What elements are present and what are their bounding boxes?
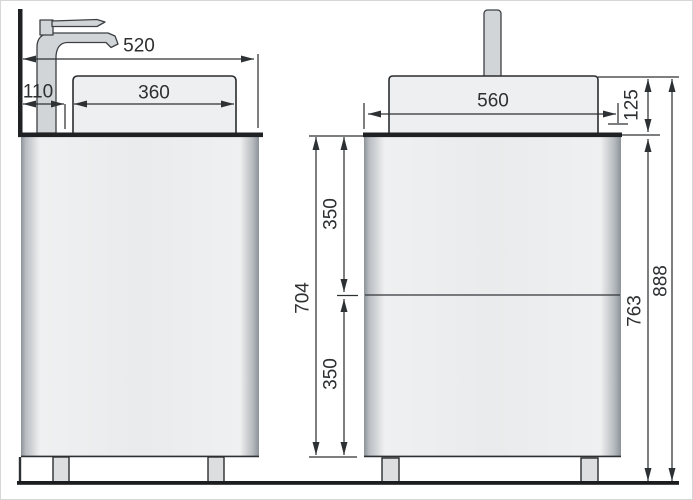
dim-560-label: 560 xyxy=(477,92,509,111)
dim-350-lower-label: 350 xyxy=(322,358,341,390)
dim-888-label: 888 xyxy=(652,265,671,297)
dim-704-label: 704 xyxy=(294,282,313,314)
cabinet-side xyxy=(21,137,259,457)
leg-side-left xyxy=(53,457,69,482)
side-view xyxy=(18,9,263,482)
leg-side-right xyxy=(208,457,224,482)
drawing-canvas: 520 110 360 560 125 704 350 350 763 888 xyxy=(0,0,693,500)
dim-360-label: 360 xyxy=(138,84,170,103)
dim-350-upper-label: 350 xyxy=(322,198,341,230)
dim-520-label: 520 xyxy=(123,37,155,56)
technical-drawing-svg xyxy=(1,1,693,500)
leg-front-right xyxy=(581,458,598,482)
countertop-side xyxy=(18,133,263,138)
dim-763-label: 763 xyxy=(626,295,645,327)
wall-line xyxy=(18,9,23,135)
leg-front-left xyxy=(382,458,399,482)
floor-line xyxy=(17,481,679,485)
cabinet-front xyxy=(364,137,621,457)
dim-125-label: 125 xyxy=(623,89,642,121)
dim-110-label: 110 xyxy=(23,83,53,102)
faucet-front-icon xyxy=(484,10,501,80)
countertop-front xyxy=(363,133,622,138)
front-view xyxy=(363,10,622,482)
